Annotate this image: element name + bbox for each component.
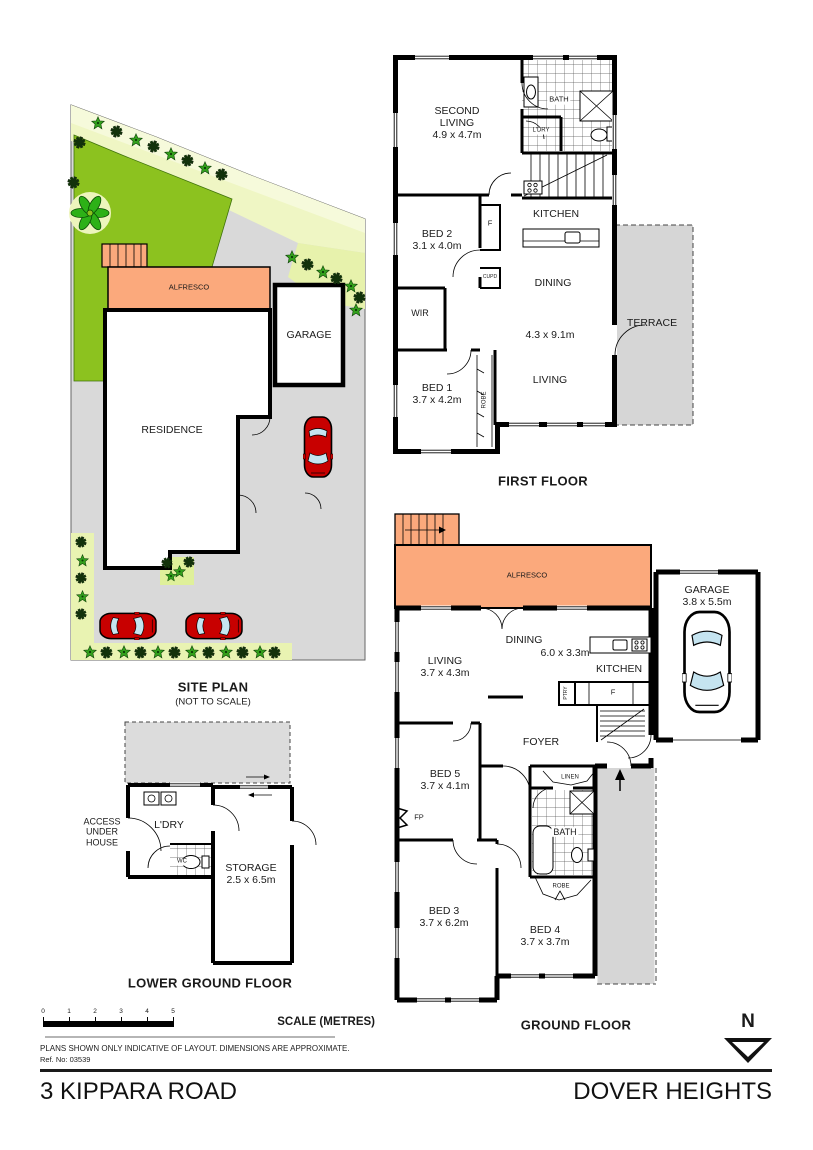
stairs — [600, 709, 645, 740]
alfresco-label: ALFRESCO — [507, 572, 547, 581]
scale-tick-1: 1 — [67, 1008, 71, 1015]
foyer-label: FOYER — [523, 736, 559, 748]
scale-tick-0: 0 — [41, 1008, 45, 1015]
living-label: LIVING 3.7 x 4.3m — [420, 655, 469, 679]
site-alfresco-label: ALFRESCO — [169, 284, 209, 293]
bed1-label: BED 1 3.7 x 4.2m — [412, 382, 461, 406]
ground-floor-plan: ALFRESCO GARAGE 3.8 x 5.5m DINING 6.0 x … — [393, 510, 765, 1035]
dining-dims-label: 6.0 x 3.3m — [540, 647, 589, 659]
second-living-label: SECOND LIVING 4.9 x 4.7m — [421, 105, 493, 141]
site-stairs — [102, 244, 147, 267]
site-plan: ALFRESCO GARAGE RESIDENCE SITE PLAN (NOT… — [60, 95, 370, 713]
north-arrow-icon — [716, 1030, 780, 1068]
dining-label: DINING — [506, 634, 543, 646]
fridge-label: F — [611, 689, 616, 698]
scale-label: SCALE (METRES) — [277, 1016, 375, 1028]
street-address: 3 KIPPARA ROAD — [40, 1078, 237, 1106]
wir-label: WIR — [411, 308, 429, 318]
robe-label: ROBE — [482, 391, 489, 408]
car-parked-2 — [186, 612, 242, 640]
car-parked-1 — [100, 612, 156, 640]
dining-label: DINING — [535, 277, 572, 289]
bed2-label: BED 2 3.1 x 4.0m — [412, 228, 461, 252]
robe-label: ROBE — [550, 884, 571, 891]
lower-ground-title: LOWER GROUND FLOOR — [128, 977, 292, 992]
disclaimer-text: PLANS SHOWN ONLY INDICATIVE OF LAYOUT. D… — [40, 1044, 350, 1053]
car-driveway — [303, 417, 333, 477]
ldry-label: L'DRY — [530, 128, 551, 135]
living-label: LIVING — [533, 374, 567, 386]
scale-tick-4: 4 — [145, 1008, 149, 1015]
scale-bar: 0 1 2 3 4 5 SCALE (METRES) — [40, 1008, 340, 1042]
scale-tick-5: 5 — [171, 1008, 175, 1015]
site-plan-subtitle: (NOT TO SCALE) — [175, 698, 251, 709]
site-residence-label: RESIDENCE — [141, 424, 202, 436]
garage-label: GARAGE 3.8 x 5.5m — [682, 584, 731, 608]
first-floor-title: FIRST FLOOR — [498, 475, 588, 490]
kitchen-label: KITCHEN — [533, 208, 579, 220]
pantry-label: PTRY — [564, 686, 570, 699]
suburb-name: DOVER HEIGHTS — [573, 1078, 772, 1106]
site-plan-title: SITE PLAN — [178, 681, 249, 696]
scale-tick-2: 2 — [93, 1008, 97, 1015]
bed3-label: BED 3 3.7 x 6.2m — [419, 905, 468, 929]
tree — [69, 192, 111, 234]
access-under-house-label: ACCESS UNDER HOUSE — [83, 816, 120, 847]
wc-label: WC — [175, 859, 189, 866]
floorplan-sheet: ALFRESCO GARAGE RESIDENCE SITE PLAN (NOT… — [0, 0, 813, 1150]
divider-line — [45, 1036, 335, 1038]
garage-car — [682, 612, 732, 712]
doors — [128, 805, 316, 868]
fridge-label: F — [488, 220, 493, 229]
linen-label: LINEN — [559, 775, 581, 782]
cupd-label: CUPD — [483, 275, 497, 281]
bed4-label: BED 4 3.7 x 3.7m — [520, 924, 569, 948]
kitchen-label: KITCHEN — [596, 663, 642, 675]
scale-tick-3: 3 — [119, 1008, 123, 1015]
ref-number: Ref. No: 03539 — [40, 1055, 90, 1064]
site-garage-label: GARAGE — [287, 329, 332, 341]
scale-bar-rule — [43, 1021, 174, 1027]
site-plan-svg — [60, 95, 370, 713]
lower-ground-plan: ACCESS UNDER HOUSE L'DRY WC STORAGE 2.5 … — [60, 713, 345, 998]
ldry-label: L'DRY — [154, 819, 184, 831]
house-over-area — [125, 722, 290, 783]
first-floor-plan: SECOND LIVING 4.9 x 4.7m BATH L'DRY BED … — [393, 55, 703, 495]
fireplace-label: FP — [414, 814, 424, 823]
footer-rule — [40, 1069, 772, 1072]
bath-label: BATH — [551, 827, 578, 837]
storage-label: STORAGE 2.5 x 6.5m — [225, 862, 276, 886]
bed5-label: BED 5 3.7 x 4.1m — [420, 768, 469, 792]
lower-ground-svg — [60, 713, 345, 998]
dining-dims-label: 4.3 x 9.1m — [525, 329, 574, 341]
ground-floor-title: GROUND FLOOR — [521, 1019, 631, 1034]
side-patio — [598, 768, 655, 984]
terrace-label: TERRACE — [627, 317, 677, 329]
bath-label: BATH — [547, 96, 570, 105]
